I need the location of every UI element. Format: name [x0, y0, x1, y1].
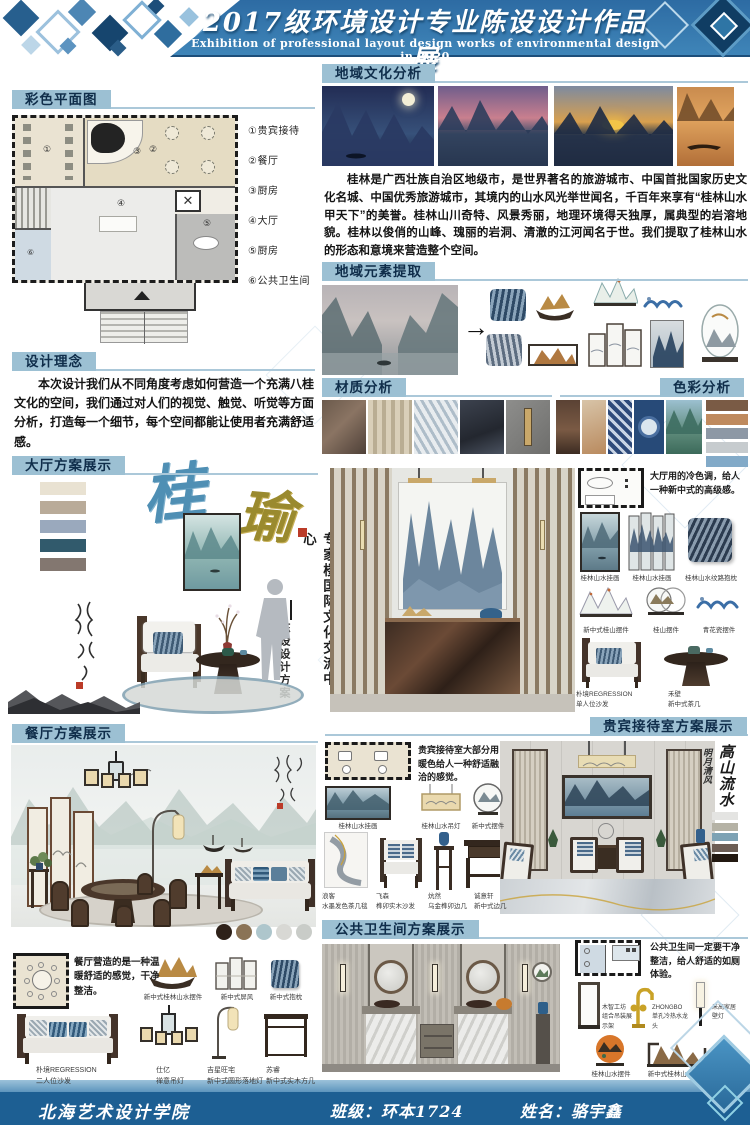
color-sample-3	[608, 400, 632, 454]
item-label: 青花瓷摆件	[694, 626, 744, 636]
plan-stairs	[15, 188, 51, 230]
element-cushion-grey	[486, 334, 522, 366]
ink-mountain-strip	[8, 684, 140, 714]
dining-chandelier	[84, 751, 148, 795]
element-boat-ornament	[532, 292, 576, 322]
vip-plan-thumb	[325, 742, 411, 780]
item-label: 浪客水墨发色茶几毯	[322, 892, 374, 912]
vip-palette	[712, 812, 738, 865]
dining-calligraphy-block	[269, 755, 307, 811]
poster-subtitle: Exhibition of professional layout design…	[190, 37, 660, 63]
vip-note: 贵宾接待室大部分用暖色给人一种舒适融洽的感觉。	[418, 744, 504, 785]
item-label: 吉星旺宅新中式圆形落地灯	[207, 1066, 269, 1088]
footer-class: 班级：环本1724	[330, 1098, 464, 1122]
item-label: 桂林山水挂画	[574, 574, 626, 584]
poster: 2017级环境设计专业陈设设计作品展 Exhibition of profess…	[0, 0, 750, 1125]
hall-item-cushion	[688, 518, 732, 562]
item-label: 桂林山水吊灯	[414, 822, 468, 832]
guilin-photo-sunset-pink	[438, 86, 548, 166]
item-label: 新中式桂林山水摆件	[137, 993, 209, 1003]
dining-item-screen	[215, 957, 257, 991]
section-title-culture: 地域文化分析	[322, 64, 435, 83]
section-title-hall: 大厅方案展示	[12, 456, 125, 475]
element-mountain-ornament-white	[592, 277, 638, 307]
hall-item-mountain-ornament	[578, 586, 634, 618]
item-label: 朴境REGRESSION单人位沙发	[576, 690, 648, 710]
restroom-item-round-art	[592, 1034, 628, 1068]
color-sample-plate	[634, 400, 664, 454]
color-sample-2	[582, 400, 606, 454]
hall-item-porcelain	[694, 594, 742, 612]
dining-item-floor-lamp	[212, 1002, 242, 1060]
dining-sofa	[225, 855, 315, 913]
color-analysis-swatches	[706, 400, 748, 470]
hall-item-sofa	[578, 638, 646, 688]
item-label: 新中式屏风	[215, 993, 259, 1003]
hall-item-tea-table	[662, 646, 730, 688]
ink-calligraphy-column	[70, 600, 100, 690]
section-title-color: 色彩分析	[660, 378, 744, 397]
item-label: 禾壁新中式茶几	[668, 690, 728, 710]
element-frame-mountain	[528, 344, 578, 368]
material-sample-metal-lamp	[506, 400, 550, 454]
footer-band: 北海艺术设计学院 班级：环本1724 姓名：骆宇鑫	[0, 1092, 750, 1125]
section-title-floor-plan: 彩色平面图	[12, 90, 111, 109]
item-label: 炕然乌金榫卯边几	[428, 892, 472, 912]
item-label: 朴境REGRESSION二人位沙发	[36, 1066, 112, 1088]
vip-item-chair	[378, 838, 424, 888]
hall-note: 大厅用的冷色调，给人一种新中式的高级感。	[650, 470, 748, 497]
restroom-render	[322, 944, 560, 1072]
plan-restroom: ⑥	[15, 230, 51, 280]
culture-body: 桂林是广西壮族自治区地级市，是世界著名的旅游城市、中国首批国家历史文化名城、中国…	[324, 172, 747, 261]
color-sample-1	[556, 400, 580, 454]
item-label: ZHONGBO单孔冷热水龙头	[652, 1004, 692, 1032]
plan-room-dining: ③ ②	[85, 118, 235, 188]
dining-item-chandelier	[140, 1005, 198, 1059]
item-label: 飞森榫卯实木沙发	[376, 892, 428, 912]
plan-room-kitchen: ⑤	[175, 214, 235, 280]
plan-steps	[100, 311, 188, 343]
plan-elevator: ✕	[175, 190, 201, 212]
header-band: 2017级环境设计专业陈设设计作品展 Exhibition of profess…	[0, 0, 750, 57]
material-sample-wood	[322, 400, 366, 454]
section-title-vip: 贵宾接待室方案展示	[590, 717, 747, 736]
hall-palette	[40, 482, 86, 577]
item-label: 新中式抱枕	[264, 993, 308, 1003]
element-porcelain-wave	[643, 294, 689, 310]
plan-hall: ④	[51, 188, 175, 280]
vip-item-flower-stand	[432, 832, 456, 890]
element-cushion-blue	[490, 289, 526, 321]
item-label: 桂林山水摆件	[586, 1070, 636, 1080]
legend-item: ⑥公共卫生间	[248, 272, 310, 287]
item-label: 桂林山水纹路抱枕	[676, 574, 746, 584]
dining-boats	[201, 833, 259, 855]
section-title-elements: 地域元素提取	[322, 262, 435, 281]
material-sample-curtain	[368, 400, 412, 454]
section-title-dining: 餐厅方案展示	[12, 724, 125, 743]
legend-item: ⑤厨房	[248, 242, 278, 257]
reception-counter	[385, 618, 520, 694]
item-label: 仕亿禅意吊灯	[156, 1066, 206, 1088]
plan-room-vip: ①	[15, 118, 85, 188]
hall-item-screen	[628, 512, 675, 572]
section-title-concept: 设计理念	[12, 352, 96, 371]
item-label: 新中式摆件	[466, 822, 510, 832]
item-label: 桂山摆件	[646, 626, 686, 636]
footer-accent-strip	[0, 1080, 750, 1092]
restroom-plan-thumb	[575, 940, 641, 976]
color-sample-landscape	[666, 400, 702, 454]
guilin-photo-sunset-gold	[554, 86, 673, 166]
dining-item-cushion	[271, 960, 299, 988]
vip-item-round-ornament	[470, 782, 506, 818]
dining-render	[11, 745, 316, 927]
hall-painting	[183, 513, 241, 591]
vip-item-pendant	[420, 784, 462, 816]
dining-side-table	[195, 863, 223, 909]
legend-item: ②餐厅	[248, 152, 278, 167]
element-screen-panels	[587, 322, 645, 368]
dining-item-sofa	[15, 1012, 121, 1064]
legend-item: ③厨房	[248, 182, 278, 197]
floor-plan: ① ③ ② ④ ⑥ ✕ ⑤	[12, 115, 244, 345]
person-silhouette	[256, 578, 294, 682]
element-art-panels-blue	[650, 320, 684, 368]
footer-name: 姓名：骆宇鑫	[520, 1098, 622, 1122]
dining-palette	[216, 924, 318, 942]
dining-table-set	[45, 865, 189, 927]
item-label: 苏睿新中式实木方几	[266, 1066, 322, 1088]
hall-item-painting	[580, 512, 620, 572]
vip-item-painting	[325, 786, 391, 820]
hall-render	[330, 468, 575, 712]
restroom-item-rack	[578, 982, 600, 1028]
hall-mural	[398, 482, 507, 610]
section-title-restroom: 公共卫生间方案展示	[322, 920, 479, 939]
item-label: 新中式桂山摆件	[574, 626, 638, 636]
item-label: 诚意轩新中式边几	[474, 892, 518, 912]
legend-item: ①贵宾接待	[248, 122, 299, 137]
footer-school: 北海艺术设计学院	[38, 1098, 190, 1123]
legend-item: ④大厅	[248, 212, 278, 227]
guilin-photo-night	[322, 86, 434, 166]
guilin-photo-river-orange	[677, 87, 734, 166]
section-title-material: 材质分析	[322, 378, 406, 397]
item-label: 木智工坊组合吊装展示架	[602, 1004, 634, 1032]
hall-item-circle-ornament	[644, 586, 686, 618]
item-label: 桂林山水挂画	[325, 822, 391, 832]
dining-plan-thumb	[13, 953, 69, 1009]
vip-item-ink-rug	[324, 832, 368, 888]
vip-render	[500, 741, 715, 914]
element-glass-dome	[700, 303, 740, 365]
vip-calligraphy-2: 明月清风	[700, 748, 713, 818]
dining-item-square-table	[264, 1014, 308, 1058]
plan-entrance	[84, 283, 196, 311]
material-sample-lace	[414, 400, 458, 454]
hall-vase-branches	[205, 592, 251, 656]
hall-calligraphy-sub: 瑜	[235, 470, 298, 556]
concept-body: 本次设计我们从不同角度考虑如何营造一个充满八桂文化的空间，我们通过对人们的视觉、…	[14, 375, 314, 452]
material-sample-dark-fabric	[460, 400, 504, 454]
item-label: 桂林山水挂画	[626, 574, 678, 584]
hall-plan-thumb	[578, 468, 644, 508]
element-source-photo	[322, 285, 458, 375]
restroom-note: 公共卫生间一定要干净整洁，给人舒适的如厕体验。	[650, 941, 748, 982]
